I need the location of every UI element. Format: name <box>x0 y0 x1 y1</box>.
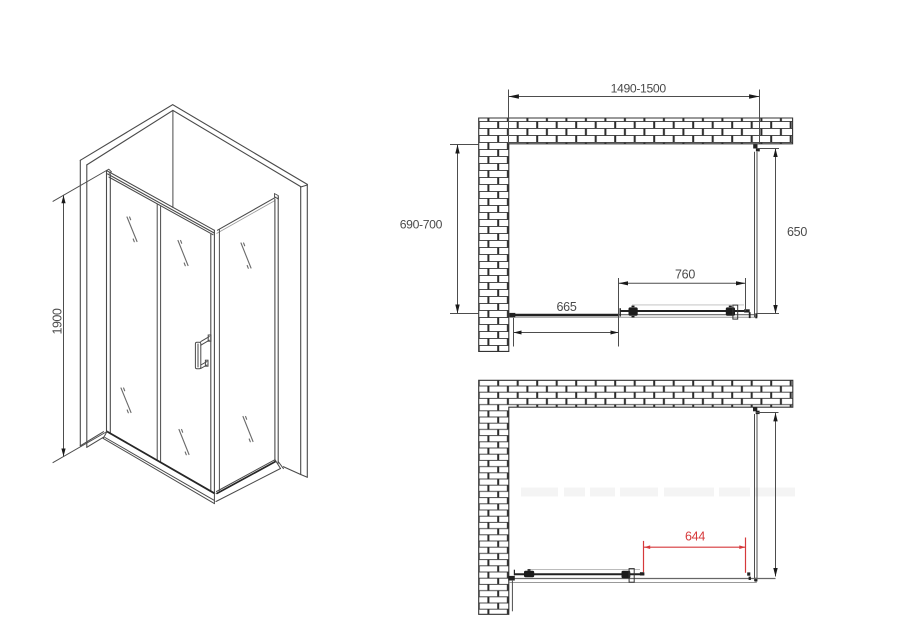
svg-text:644: 644 <box>685 530 705 544</box>
svg-text:690-700: 690-700 <box>400 217 443 231</box>
svg-text:1490-1500: 1490-1500 <box>611 81 667 95</box>
svg-text:650: 650 <box>787 225 807 239</box>
svg-text:1900: 1900 <box>51 308 65 334</box>
svg-text:665: 665 <box>557 300 577 314</box>
svg-text:760: 760 <box>675 268 695 282</box>
